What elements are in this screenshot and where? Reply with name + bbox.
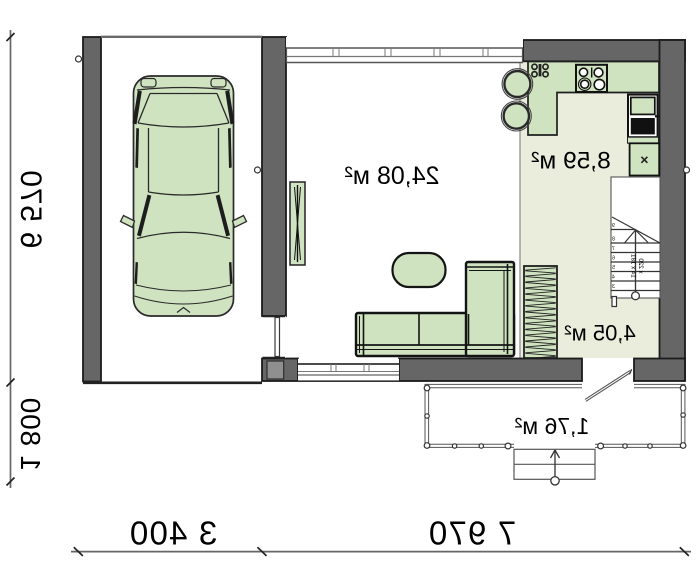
- svg-text:7: 7: [612, 246, 615, 252]
- svg-text:6: 6: [612, 256, 615, 262]
- svg-text:5: 5: [612, 265, 615, 271]
- svg-text:9: 9: [612, 223, 615, 229]
- svg-text:8,59 м²: 8,59 м²: [531, 148, 611, 175]
- svg-text:7 970: 7 970: [428, 515, 517, 552]
- svg-text:6 570: 6 570: [14, 169, 47, 248]
- svg-text:х 220: х 220: [637, 258, 644, 274]
- svg-text:3 400: 3 400: [129, 515, 218, 552]
- svg-text:24,08 м²: 24,08 м²: [344, 162, 439, 190]
- svg-text:8: 8: [612, 237, 615, 243]
- svg-text:3: 3: [612, 284, 615, 290]
- svg-text:4,05 м²: 4,05 м²: [564, 321, 635, 346]
- svg-text:4: 4: [612, 275, 615, 281]
- svg-text:1,76 м²: 1,76 м²: [514, 413, 589, 439]
- svg-text:1 800: 1 800: [15, 397, 46, 471]
- svg-text:14 х 181: 14 х 181: [630, 254, 637, 278]
